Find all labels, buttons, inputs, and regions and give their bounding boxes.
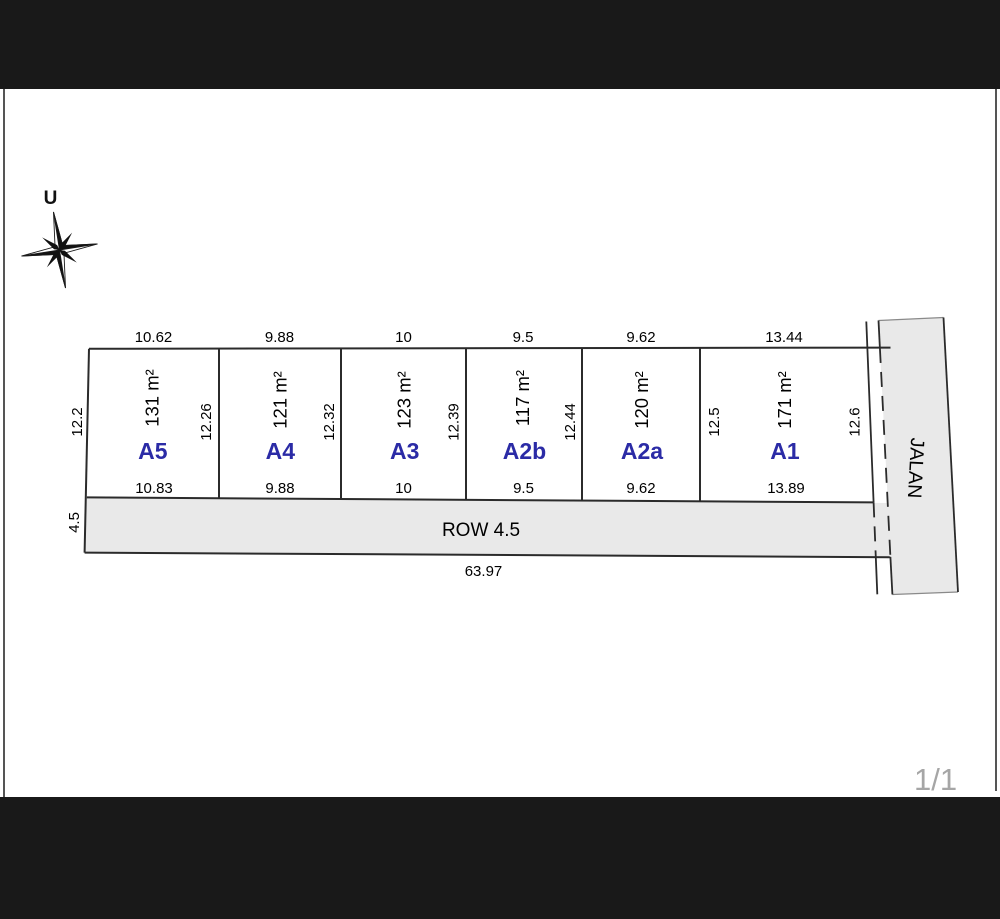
svg-text:ROW 4.5: ROW 4.5 (442, 520, 520, 541)
svg-text:120 m²: 120 m² (631, 371, 652, 429)
svg-text:12.2: 12.2 (69, 407, 86, 436)
svg-text:12.5: 12.5 (706, 407, 723, 436)
svg-text:13.89: 13.89 (767, 480, 805, 497)
svg-text:A3: A3 (390, 438, 419, 464)
svg-text:A2a: A2a (621, 438, 663, 464)
svg-text:12.39: 12.39 (446, 403, 463, 441)
svg-text:10.83: 10.83 (135, 480, 173, 497)
svg-text:63.97: 63.97 (465, 563, 503, 580)
svg-text:117 m²: 117 m² (512, 370, 533, 426)
svg-text:4.5: 4.5 (66, 512, 83, 533)
svg-text:9.88: 9.88 (265, 329, 294, 346)
svg-text:123 m²: 123 m² (394, 371, 415, 429)
svg-text:12.44: 12.44 (562, 403, 579, 441)
svg-text:171 m²: 171 m² (774, 371, 795, 429)
svg-text:A5: A5 (138, 438, 168, 464)
svg-text:9.62: 9.62 (626, 329, 655, 346)
svg-text:9.5: 9.5 (513, 329, 534, 346)
svg-text:JALAN: JALAN (903, 437, 928, 499)
svg-text:12.6: 12.6 (847, 407, 864, 436)
svg-text:121 m²: 121 m² (270, 371, 291, 429)
svg-text:12.26: 12.26 (198, 403, 215, 441)
svg-text:12.32: 12.32 (321, 403, 338, 441)
svg-text:A2b: A2b (503, 438, 546, 464)
svg-text:10.62: 10.62 (135, 329, 173, 346)
svg-text:U: U (44, 188, 58, 209)
svg-text:A4: A4 (266, 438, 296, 464)
svg-text:9.88: 9.88 (265, 480, 294, 497)
svg-text:131 m²: 131 m² (141, 369, 162, 427)
svg-text:13.44: 13.44 (765, 329, 803, 346)
svg-text:10: 10 (395, 329, 412, 346)
svg-text:9.62: 9.62 (626, 480, 655, 497)
svg-text:A1: A1 (770, 438, 800, 464)
svg-text:10: 10 (395, 480, 412, 497)
svg-text:9.5: 9.5 (513, 480, 534, 497)
